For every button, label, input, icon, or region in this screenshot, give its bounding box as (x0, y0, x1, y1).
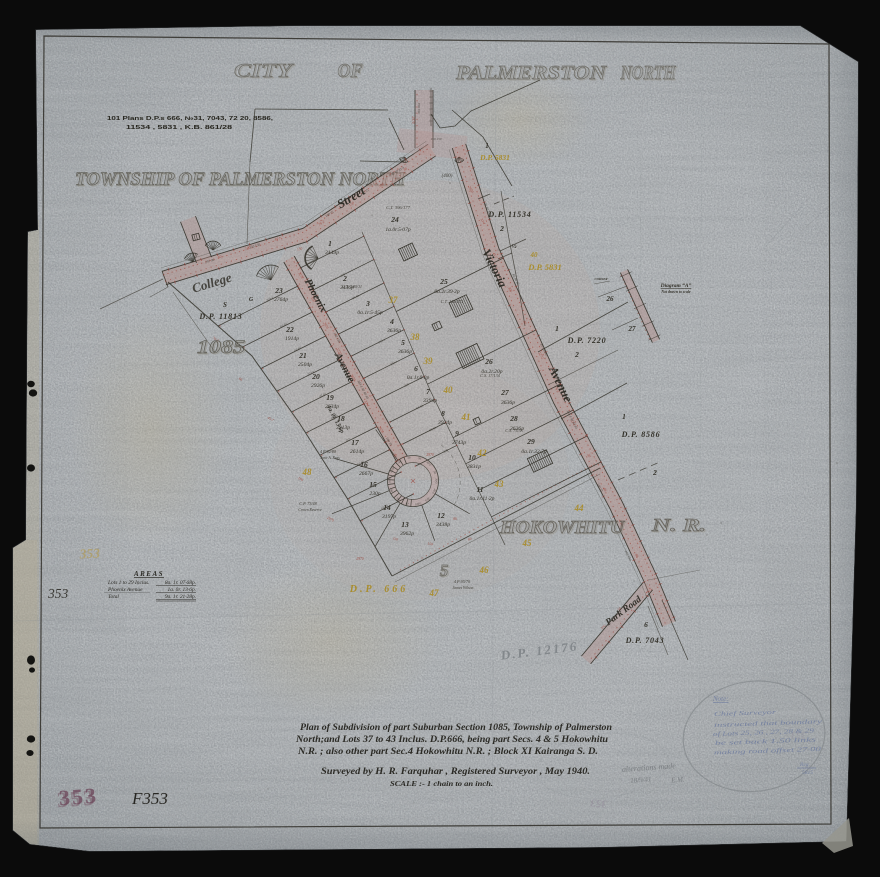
svg-text:5815: 5815 (802, 770, 813, 776)
svg-text:2667p: 2667p (359, 471, 373, 477)
svg-text:4: 4 (389, 317, 394, 326)
svg-text:40: 40 (530, 251, 539, 259)
svg-text:Crown Reserve: Crown Reserve (298, 508, 321, 512)
svg-text:3149p: 3149p (324, 250, 339, 256)
svg-text:D.P. 5831: D.P. 5831 (527, 262, 562, 272)
svg-text:150 150: 150 150 (417, 102, 421, 113)
svg-text:C.T. 180/11: C.T. 180/11 (342, 284, 362, 289)
svg-text:E.M.: E.M. (670, 776, 685, 785)
svg-text:N.R. ; also other part Sec.4 H: N.R. ; also other part Sec.4 Hokowhitu N… (297, 746, 598, 756)
svg-text:26: 26 (484, 357, 493, 366)
svg-text:47: 47 (429, 588, 440, 598)
svg-text:101 Plans D.P.s 666, №31, 704: 101 Plans D.P.s 666, №31, 7043, 72 20, 8… (107, 116, 274, 122)
svg-text:8a. 1r. 07·68p.: 8a. 1r. 07·68p. (165, 580, 196, 586)
svg-text:9a. 1r. 21·28p.: 9a. 1r. 21·28p. (165, 594, 196, 600)
svg-text:James Wilson: James Wilson (453, 586, 474, 590)
svg-text:3743p: 3743p (451, 440, 466, 446)
svg-text:1914p: 1914p (285, 336, 299, 342)
svg-text:37: 37 (388, 295, 399, 305)
svg-text:Lots 1 to 29 Inclus.: Lots 1 to 29 Inclus. (107, 580, 149, 586)
svg-text:48: 48 (302, 467, 313, 477)
svg-text:0a.1r.0·0p: 0a.1r.0·0p (407, 375, 430, 381)
svg-text:25: 25 (439, 277, 448, 286)
svg-text:19: 19 (326, 393, 334, 402)
svg-text:4 P 95/70: 4 P 95/70 (454, 579, 471, 584)
svg-text:30·5: 30·5 (435, 478, 439, 484)
svg-text:AREAS: AREAS (133, 570, 164, 578)
svg-text:10: 10 (468, 453, 476, 462)
svg-text:6: 6 (644, 620, 648, 629)
svg-text:13: 13 (401, 520, 409, 529)
svg-text:PALMERSTON: PALMERSTON (455, 62, 608, 84)
svg-text:Not drawn to scale: Not drawn to scale (660, 290, 691, 294)
svg-text:23: 23 (274, 286, 283, 295)
svg-text:29: 29 (526, 437, 535, 446)
svg-text:Jane A. Ross: Jane A. Ross (320, 456, 340, 460)
svg-text:3962p: 3962p (399, 531, 414, 537)
svg-text:44: 44 (574, 503, 585, 513)
svg-text:9: 9 (455, 429, 459, 438)
svg-text:D.P. 7220: D.P. 7220 (567, 336, 607, 345)
svg-text:45: 45 (522, 538, 533, 548)
svg-text:3438p: 3438p (435, 522, 450, 528)
svg-text:D.P. 666: D.P. 666 (349, 584, 409, 595)
svg-text:4 P 92/88: 4 P 92/88 (320, 449, 337, 454)
svg-text:1: 1 (485, 142, 489, 150)
svg-text:C.S. 75/33: C.S. 75/33 (505, 428, 523, 433)
svg-text:½: ½ (512, 243, 517, 250)
svg-text:Phoenix Avenue: Phoenix Avenue (107, 587, 143, 593)
svg-text:CITY: CITY (234, 60, 294, 82)
svg-text:22: 22 (285, 325, 294, 334)
svg-text:46: 46 (479, 565, 490, 575)
svg-text:Plan of Subdivision of part Su: Plan of Subdivision of part Suburban Sec… (300, 722, 612, 732)
svg-text:3394p: 3394p (422, 398, 437, 404)
svg-text:1a.0r.5·07p: 1a.0r.5·07p (385, 227, 411, 233)
svg-text:41: 41 (461, 412, 471, 422)
svg-text:2970: 2970 (356, 557, 363, 561)
svg-text:0a.1r.32·7p: 0a.1r.32·7p (521, 449, 547, 455)
svg-text:1085: 1085 (197, 337, 246, 358)
svg-text:42: 42 (477, 448, 488, 458)
svg-text:3831p: 3831p (466, 464, 481, 470)
svg-text:12: 12 (437, 511, 445, 520)
svg-text:2970: 2970 (411, 116, 415, 123)
svg-text:150 150: 150 150 (430, 137, 441, 141)
svg-text:SCALE :- 1 chain to an inch.: SCALE :- 1 chain to an inch. (390, 781, 493, 788)
svg-text:3197p: 3197p (381, 514, 396, 520)
svg-text:2504p: 2504p (298, 362, 312, 368)
svg-text:2: 2 (499, 224, 504, 233)
svg-text:Diagram “A”: Diagram “A” (660, 283, 692, 289)
svg-text:1: 1 (328, 239, 332, 248)
svg-text:353: 353 (47, 586, 69, 601)
svg-text:3924p: 3924p (437, 420, 452, 426)
svg-text:17: 17 (351, 438, 359, 447)
svg-text:43: 43 (494, 479, 505, 489)
svg-text:North;and Lots 37 to 43 Inclus: North;and Lots 37 to 43 Inclus. D.P.666,… (295, 734, 608, 744)
svg-text:2764p: 2764p (274, 297, 288, 303)
svg-text:6: 6 (414, 364, 418, 373)
svg-text:26: 26 (606, 295, 615, 303)
svg-text:CORNER: CORNER (594, 277, 607, 281)
svg-text:2970: 2970 (426, 453, 433, 457)
svg-text:28: 28 (509, 414, 518, 423)
svg-text:353: 353 (78, 545, 100, 561)
svg-text:7: 7 (426, 387, 430, 396)
svg-text:C.S. 17/134: C.S. 17/134 (480, 373, 500, 378)
svg-text:3636p: 3636p (386, 328, 401, 334)
svg-text:D.P. 5831: D.P. 5831 (479, 153, 510, 162)
svg-text:N. R.: N. R. (651, 515, 706, 535)
svg-text:G: G (249, 297, 254, 303)
svg-text:5: 5 (440, 561, 449, 580)
svg-text:24: 24 (390, 215, 399, 224)
svg-text:2614p: 2614p (350, 449, 364, 455)
svg-text:3: 3 (365, 299, 370, 308)
svg-text:353: 353 (791, 729, 808, 741)
svg-text:353: 353 (590, 796, 609, 809)
svg-text:C.T. 141/271: C.T. 141/271 (441, 299, 464, 304)
svg-text:18: 18 (337, 414, 345, 423)
svg-text:OF: OF (338, 60, 364, 82)
svg-text:D.P. 7043: D.P. 7043 (625, 636, 665, 645)
svg-text:F353: F353 (131, 789, 168, 808)
svg-text:3213p: 3213p (335, 425, 350, 431)
svg-text:18/9/41: 18/9/41 (630, 775, 652, 784)
svg-text:11534 , 5831 , K.B. 861/28: 11534 , 5831 , K.B. 861/28 (126, 125, 232, 131)
svg-text:D.P. 11534: D.P. 11534 (487, 210, 531, 219)
svg-text:2634p: 2634p (325, 404, 339, 410)
svg-text:D.P. 11813: D.P. 11813 (198, 312, 242, 321)
svg-text:C.P. 73/48: C.P. 73/48 (299, 501, 317, 506)
svg-text:NORTH: NORTH (620, 62, 677, 84)
svg-text:2926p: 2926p (311, 383, 325, 389)
svg-text:Total: Total (108, 594, 119, 600)
svg-text:Note:: Note: (712, 695, 729, 703)
svg-text:66: 66 (453, 517, 457, 521)
svg-text:1: 1 (622, 412, 626, 421)
svg-text:D.P. 8586: D.P. 8586 (621, 430, 661, 439)
svg-text:230p: 230p (369, 491, 380, 497)
svg-text:40: 40 (443, 385, 454, 395)
svg-text:2: 2 (574, 350, 579, 359)
svg-text:3636p: 3636p (397, 349, 412, 355)
svg-text:0a.1r.11·2p: 0a.1r.11·2p (470, 496, 495, 502)
svg-text:1a. 0r. 13·6p.: 1a. 0r. 13·6p. (168, 587, 196, 593)
svg-text:Surveyed by H. R. Farquhar: Surveyed by H. R. Farquhar , Registered … (321, 766, 590, 777)
svg-text:11: 11 (476, 485, 483, 494)
svg-text:8: 8 (441, 409, 445, 418)
svg-text:Reg.: Reg. (799, 762, 810, 768)
svg-text:0a.2r.39·2p: 0a.2r.39·2p (434, 289, 460, 295)
svg-text:3636p: 3636p (500, 400, 515, 406)
svg-text:(400): (400) (442, 174, 453, 179)
svg-text:HOKOWHITU: HOKOWHITU (499, 517, 626, 537)
svg-text:39: 39 (423, 356, 434, 366)
svg-text:21: 21 (298, 351, 307, 360)
svg-text:27: 27 (500, 388, 509, 397)
svg-text:27: 27 (628, 325, 637, 333)
svg-text:353: 353 (58, 783, 99, 811)
svg-text:38: 38 (410, 332, 421, 342)
svg-text:5: 5 (401, 338, 405, 347)
svg-text:S: S (223, 301, 227, 309)
